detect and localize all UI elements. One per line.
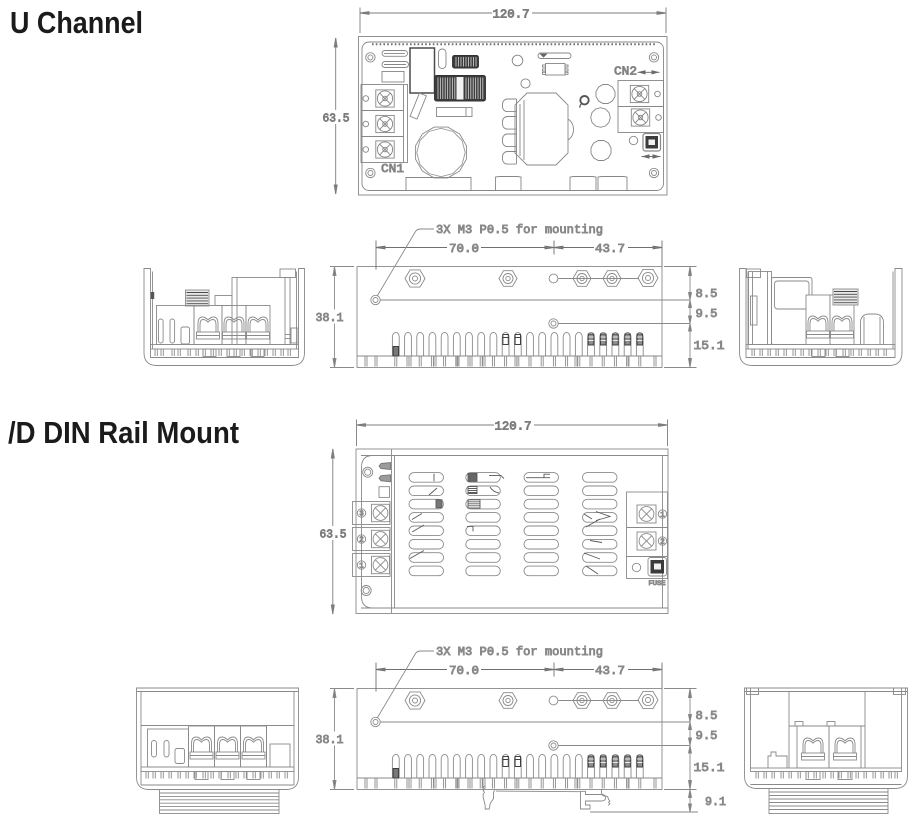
svg-text:1: 1 — [660, 512, 665, 520]
svg-text:1: 1 — [359, 563, 364, 571]
svg-text:120.7: 120.7 — [495, 420, 532, 434]
svg-text:2: 2 — [359, 537, 364, 545]
svg-text:CN1: CN1 — [381, 162, 404, 176]
svg-text:2: 2 — [660, 539, 665, 547]
svg-text:3: 3 — [359, 511, 364, 519]
svg-text:U Channel: U Channel — [10, 5, 143, 40]
svg-text:FUSE: FUSE — [649, 580, 666, 587]
svg-text:CN2: CN2 — [614, 65, 637, 79]
svg-text:120.7: 120.7 — [493, 8, 530, 22]
svg-text:63.5: 63.5 — [320, 528, 347, 542]
svg-text:63.5: 63.5 — [323, 112, 350, 126]
svg-text:9.1: 9.1 — [705, 795, 726, 809]
svg-text:/D DIN Rail Mount: /D DIN Rail Mount — [8, 415, 239, 450]
